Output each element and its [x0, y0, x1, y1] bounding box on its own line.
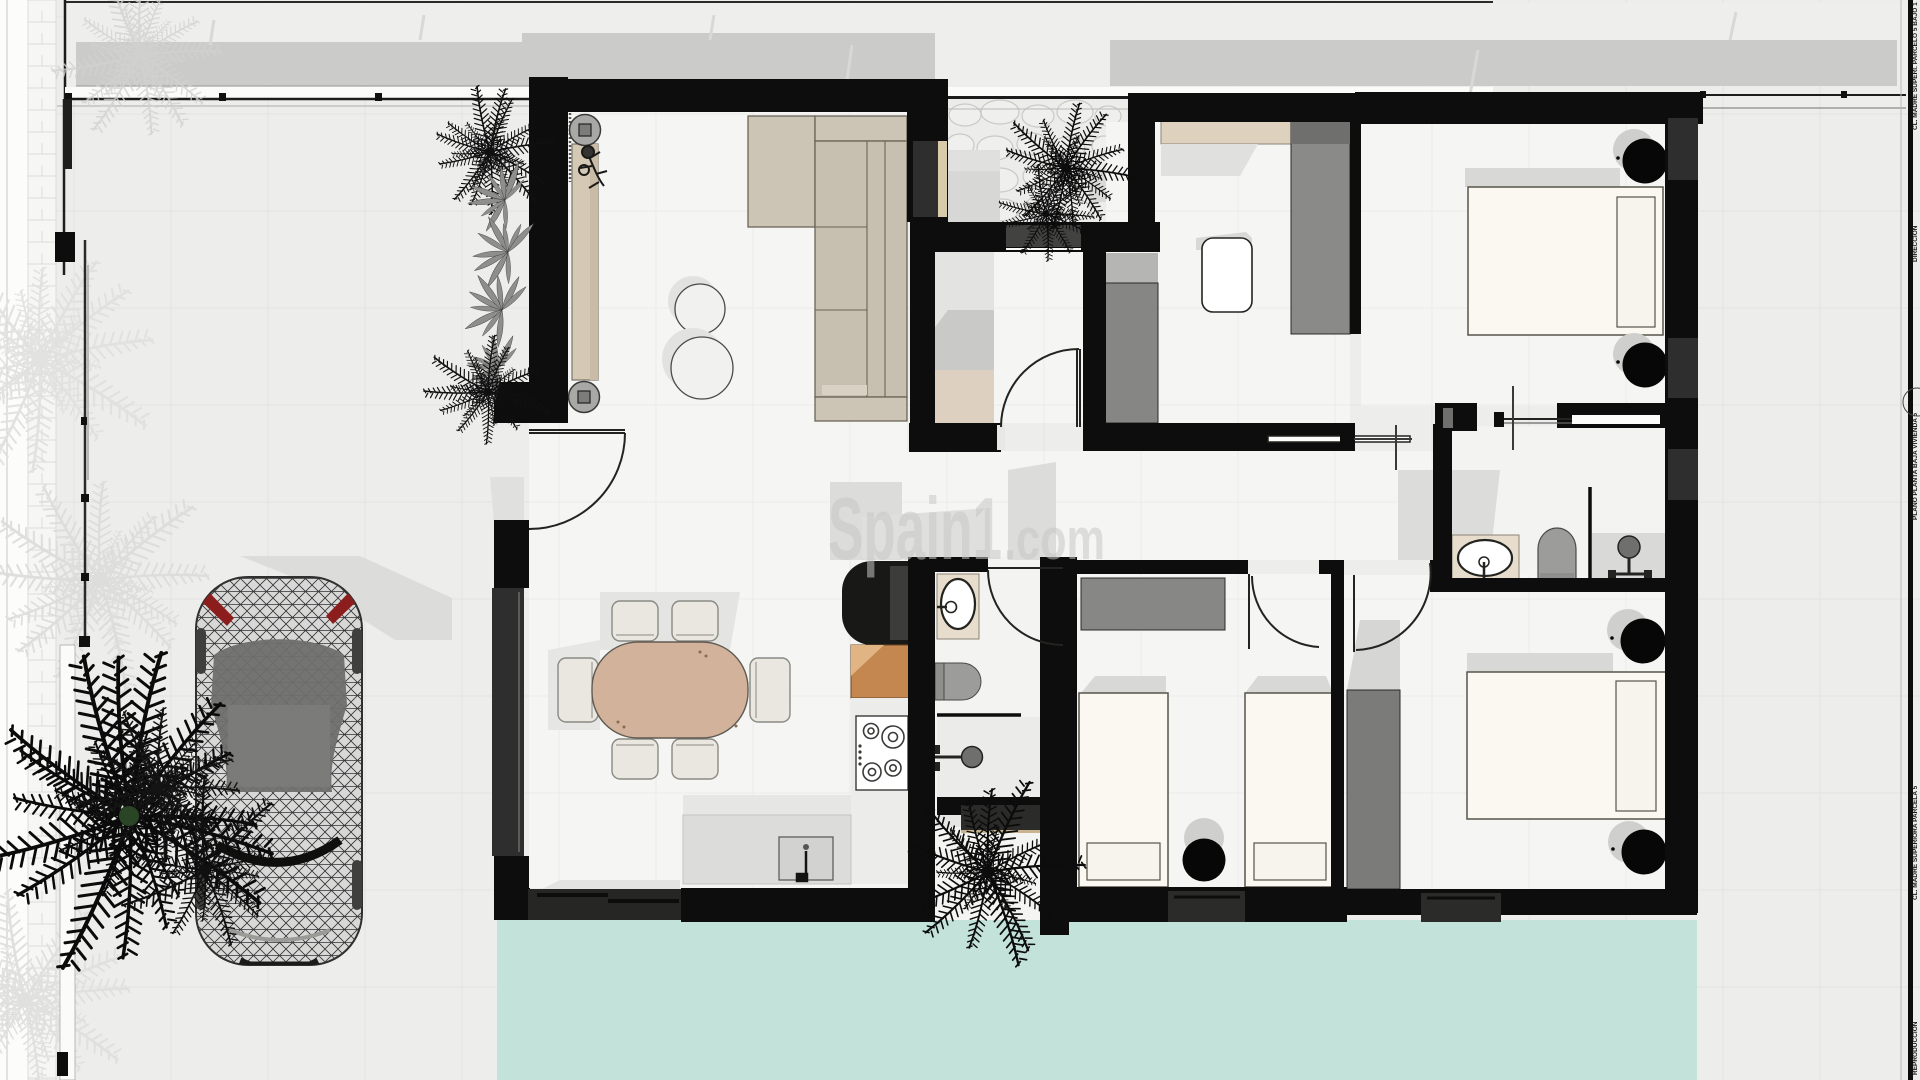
svg-text:PLANO PLANTA BAJA VIVIENDA 5: PLANO PLANTA BAJA VIVIENDA 5 — [1912, 412, 1919, 520]
svg-text:REPRODUCCION: REPRODUCCION — [1912, 1021, 1919, 1075]
svg-text:.com: .com — [1004, 507, 1105, 572]
svg-text:CL. MADRE SUPERI. PARCELO 5 BA: CL. MADRE SUPERI. PARCELO 5 BAJO 1 — [1912, 2, 1919, 130]
svg-text:DIRECCION: DIRECCION — [1912, 225, 1919, 262]
svg-text:CL. MADRE SUPERIORA PARCELA 5: CL. MADRE SUPERIORA PARCELA 5 — [1912, 785, 1919, 900]
svg-text:Spain1: Spain1 — [828, 479, 1002, 578]
